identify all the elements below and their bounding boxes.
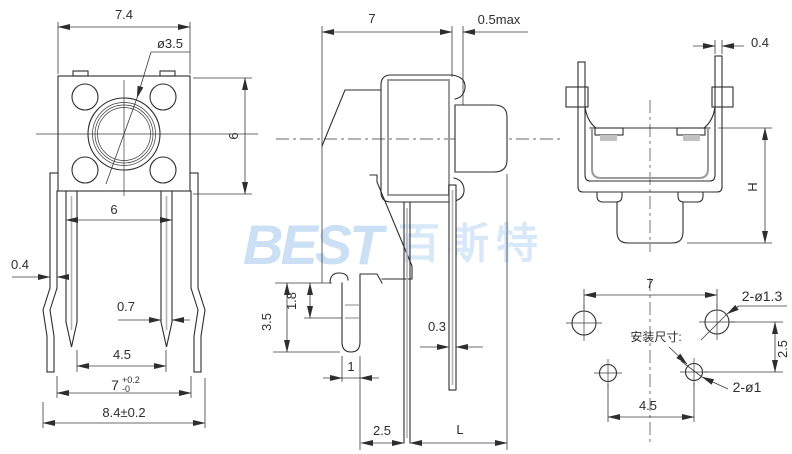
- outer-leg-right-inner: [191, 191, 198, 372]
- leader-line: [669, 347, 687, 364]
- corner-rivet: [72, 84, 98, 110]
- dim-label-button-dia: ø3.5: [157, 36, 183, 51]
- watermark-cjk-text: 百斯特: [398, 220, 545, 267]
- dim-label-pin-width: 0.7: [117, 299, 135, 314]
- dim-label-height: 6: [226, 132, 241, 139]
- outer-leg-left: [43, 173, 50, 372]
- dim-label-hole-pitch-x: 7: [646, 276, 653, 291]
- dim-label-leg-pitch: 7: [111, 377, 119, 393]
- watermark-logo-text: BEST: [243, 213, 388, 276]
- body-top-tab: [160, 71, 175, 76]
- dim-label-small-hole-pitch: 4.5: [639, 398, 657, 413]
- dim-label-ear-thickness: 0.4: [751, 35, 769, 50]
- corner-rivet: [150, 157, 176, 183]
- dim-label-slot-depth: 1.8: [284, 292, 299, 310]
- dim-label-big-holes: 2-ø1.3: [742, 288, 783, 304]
- leader-line: [702, 377, 728, 389]
- technical-drawing-page: BEST 百斯特: [0, 0, 792, 454]
- dim-label-width: 7.4: [115, 7, 133, 22]
- body-top-tab: [73, 71, 88, 76]
- corner-rivet: [150, 84, 176, 110]
- base-bump: [678, 192, 703, 202]
- base-bump: [597, 192, 622, 202]
- outer-leg-right: [198, 173, 205, 372]
- outer-leg-left-inner: [50, 191, 57, 372]
- dim-label-body-depth: 7: [368, 11, 375, 26]
- contact-foot: [683, 135, 700, 141]
- switch-body-side: [388, 80, 449, 195]
- dim-label-pin-pitch: 4.5: [113, 347, 131, 362]
- bracket-flange-edge: [322, 90, 381, 146]
- push-button-side: [455, 105, 507, 172]
- dim-label-pin-offset: 2.5: [373, 423, 391, 438]
- dim-label-gap-max: 0.5max: [478, 12, 521, 27]
- dim-label-leg-pitch-tol-dn: -0: [122, 384, 130, 394]
- front-view: 0.4 H: [566, 35, 772, 252]
- snap-tab-bottom: [342, 342, 360, 352]
- corner-rivet: [72, 157, 98, 183]
- contact-foot: [600, 135, 617, 141]
- dim-label-small-holes: 2-ø1: [733, 379, 762, 395]
- leader-line: [137, 52, 151, 98]
- dim-label-leg-thickness: 0.4: [11, 257, 29, 272]
- leader-line: [727, 306, 739, 314]
- contact-block: [677, 128, 705, 135]
- dim-label-overall-width: 8.4±0.2: [102, 405, 145, 420]
- bracket-fillet: [704, 107, 715, 128]
- top-view: 7.4 ø3.5 6 6 0.4 0.7 4.5 7 +0.2 -0: [11, 7, 258, 428]
- contact-block: [595, 128, 623, 135]
- leader-line: [701, 314, 727, 340]
- bracket-fillet: [585, 107, 596, 128]
- tact-switch-dimensional-drawing: BEST 百斯特: [0, 0, 792, 454]
- dim-label-tab-width: 1: [347, 359, 354, 374]
- dim-label-pin-outer-span: 6: [110, 202, 117, 217]
- dim-label-tab-length: 3.5: [259, 313, 274, 331]
- dim-label-hole-pitch-y: 2.5: [775, 340, 790, 358]
- dim-label-total-length: L: [456, 422, 463, 437]
- bracket-outline: [381, 75, 452, 202]
- mounting-layout: 7 2-ø1.3 2.5 安装尺寸: 2-ø1 4.5: [566, 276, 790, 445]
- dim-label-height-h: H: [745, 182, 760, 191]
- mounting-caption: 安装尺寸:: [630, 329, 681, 344]
- dim-label-pin-thickness: 0.3: [428, 319, 446, 334]
